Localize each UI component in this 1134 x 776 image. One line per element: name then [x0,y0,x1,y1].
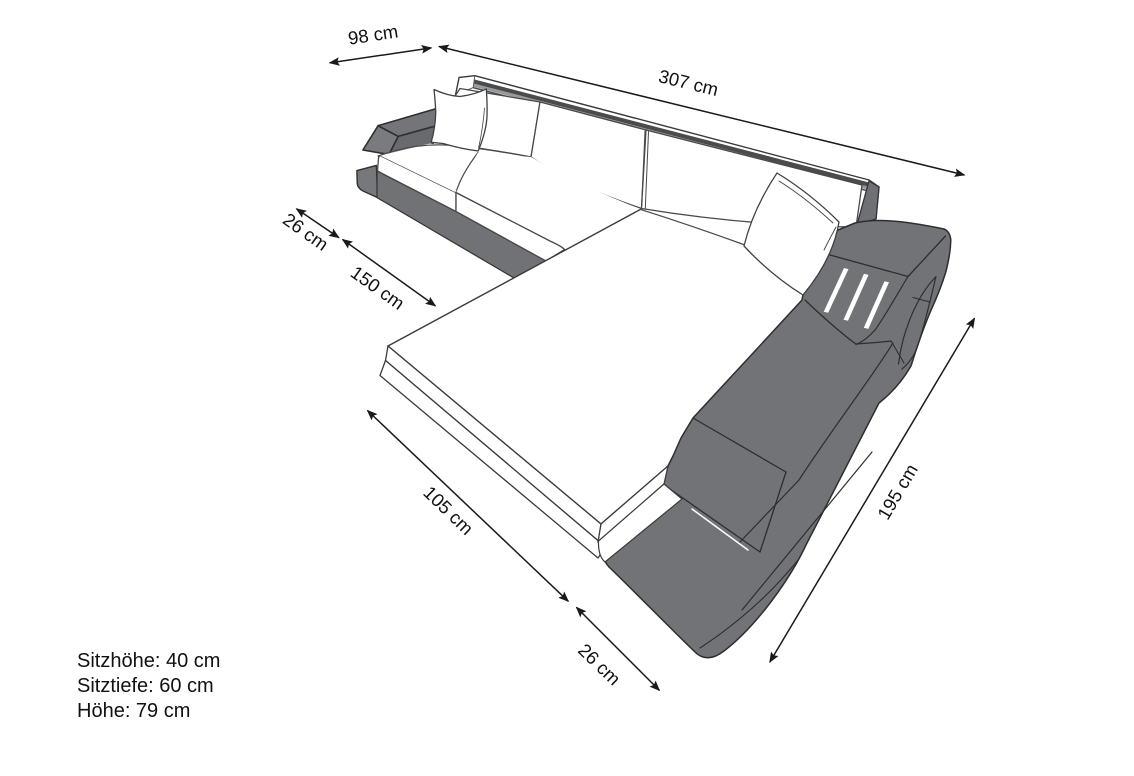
svg-text:Höhe: 79 cm: Höhe: 79 cm [77,700,190,722]
svg-text:Sitzhöhe: 40 cm: Sitzhöhe: 40 cm [77,650,220,672]
svg-text:Sitztiefe: 60 cm: Sitztiefe: 60 cm [77,675,214,697]
